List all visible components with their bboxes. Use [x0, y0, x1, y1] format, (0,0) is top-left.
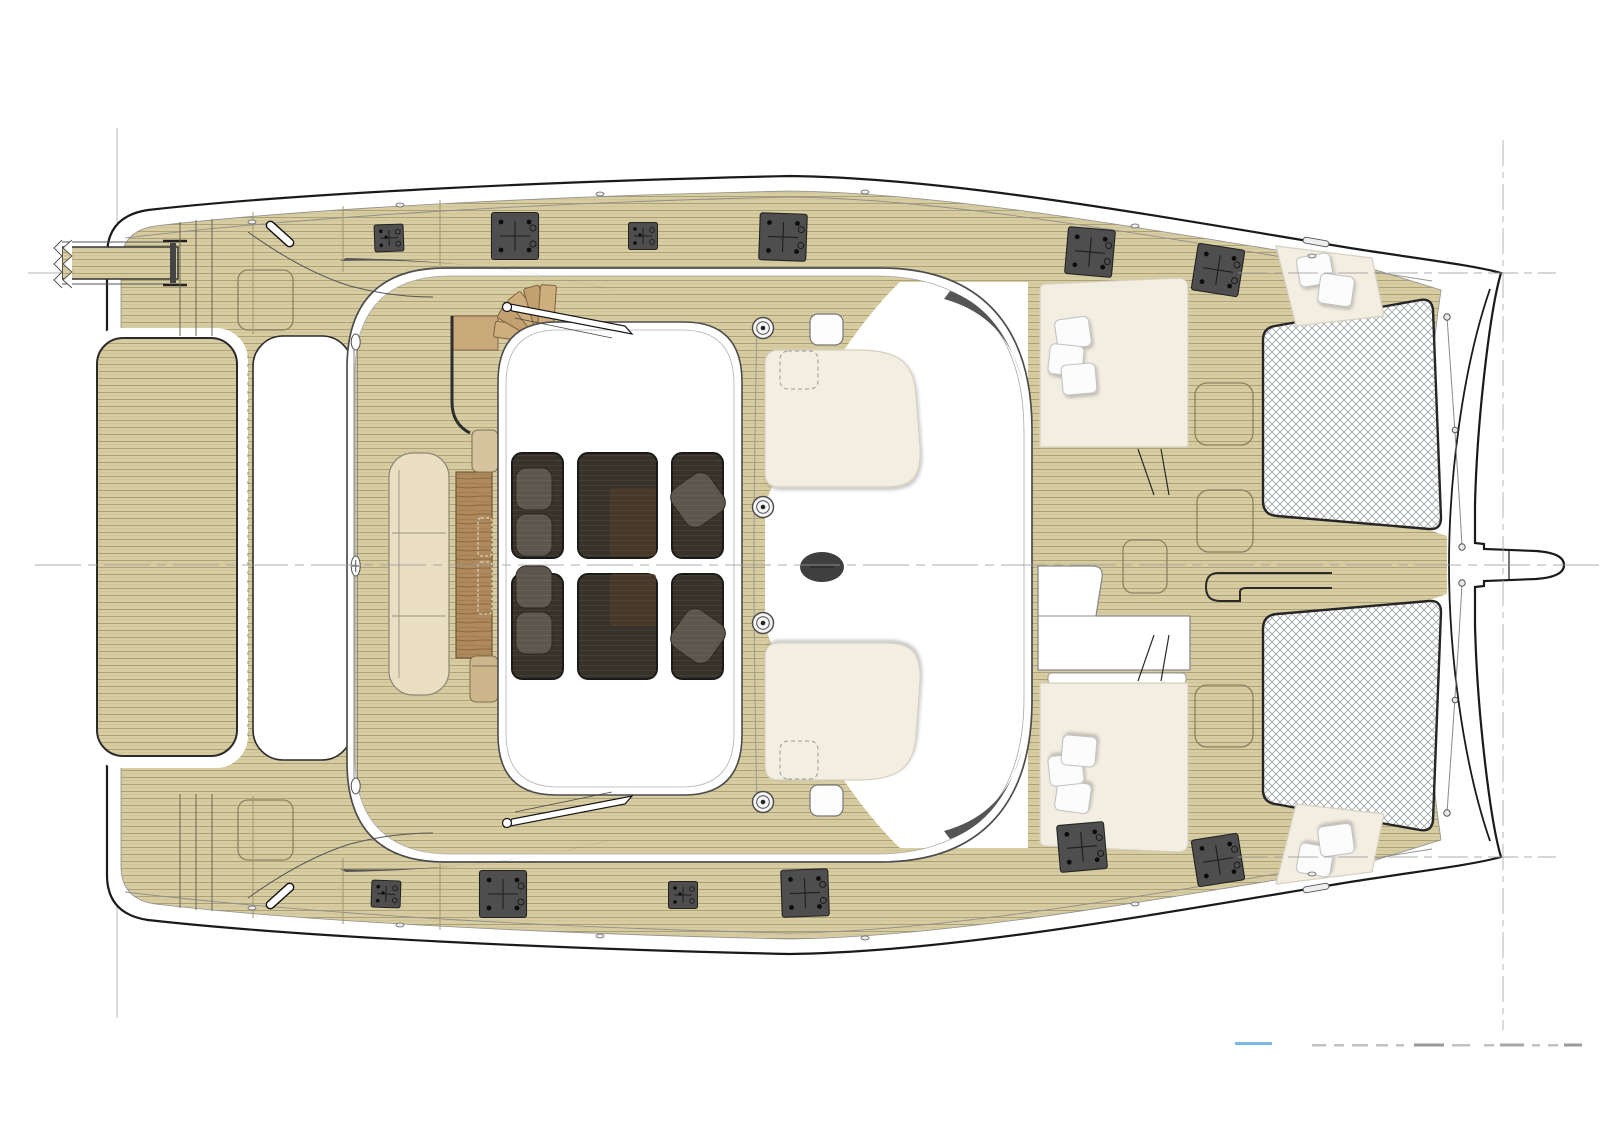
blue-underline-fragment: [1235, 1042, 1272, 1045]
sofa: [389, 453, 449, 695]
trampoline: [1263, 300, 1441, 529]
break-line: [63, 240, 72, 288]
passerelle-bracket: [170, 243, 176, 283]
aft-area: [88, 328, 352, 768]
deck-plan-drawing: [0, 0, 1600, 1130]
flybridge-lounge: [389, 430, 498, 702]
stool: [472, 430, 498, 472]
deck-plan-page: [0, 0, 1600, 1130]
aft-cockpit-recess: [253, 336, 352, 760]
skylight: [498, 322, 742, 795]
helm-pad: [765, 350, 920, 487]
roof-hatch: [810, 314, 843, 345]
cropped-text-fragments: [1235, 1042, 1582, 1047]
winch: [753, 318, 774, 339]
winch: [753, 497, 774, 518]
chair: [470, 656, 498, 702]
aft-teak-platform: [97, 338, 237, 756]
